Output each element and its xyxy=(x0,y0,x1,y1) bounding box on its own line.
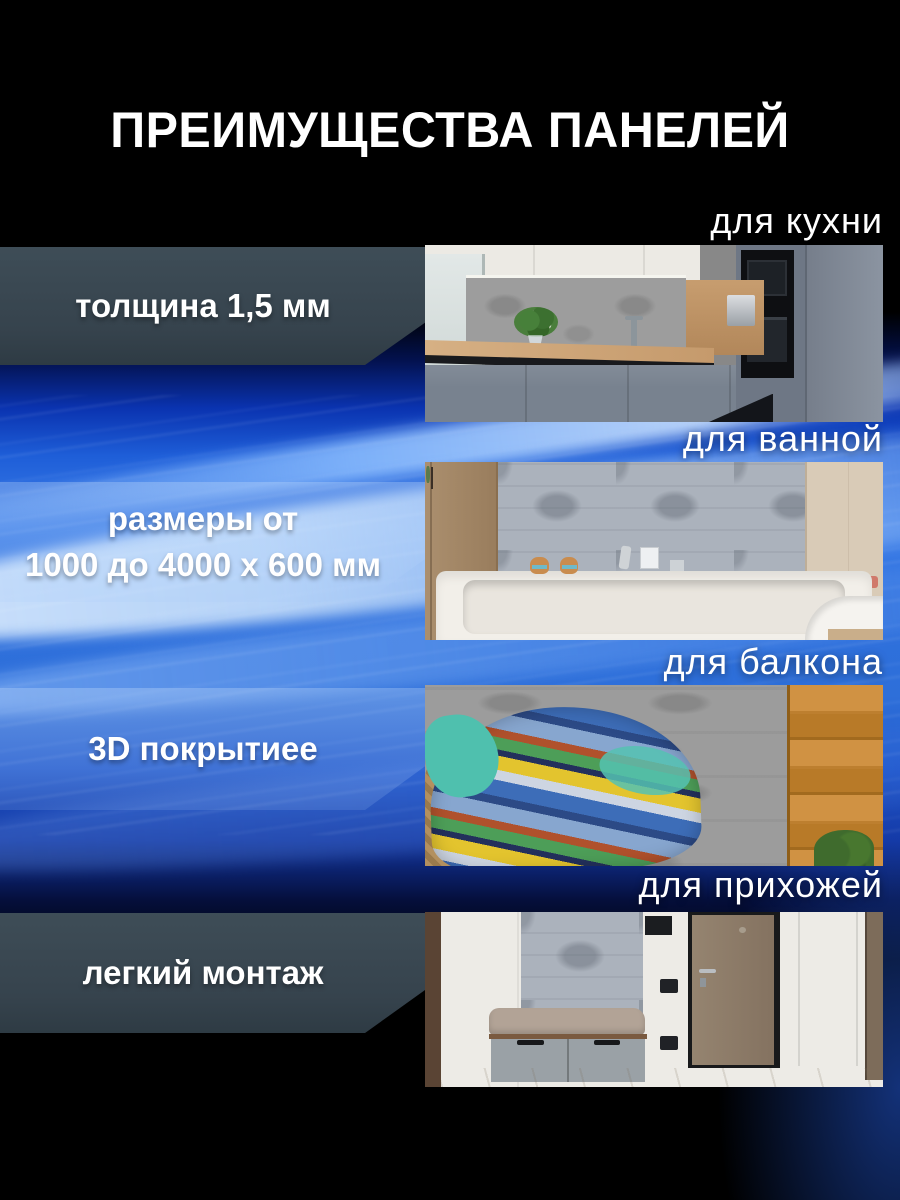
section-caption-hallway: для прихожей xyxy=(383,864,883,906)
page-title: ПРЕИМУЩЕСТВА ПАНЕЛЕЙ xyxy=(14,101,887,159)
kitchen-faucet xyxy=(631,316,637,346)
wardrobe-edge xyxy=(865,912,883,1080)
kitchen-tall-cabinets xyxy=(805,245,883,422)
bath-faucet xyxy=(640,547,658,568)
section-caption-kitchen: для кухни xyxy=(383,200,883,242)
wall-trim xyxy=(798,912,800,1066)
hallway-panel-wall xyxy=(521,912,642,1022)
drawer-handle xyxy=(594,1040,620,1044)
balcony-photo xyxy=(425,685,883,866)
feature-plate-installation: легкий монтаж xyxy=(0,913,432,1033)
plank-seam xyxy=(430,462,432,640)
feature-label: легкий монтаж xyxy=(83,950,324,996)
bathroom-photo xyxy=(425,462,883,640)
feature-plate-sizes: размеры от 1000 до 4000 х 600 мм xyxy=(0,482,432,602)
green-bush xyxy=(814,830,874,866)
drawer-handle xyxy=(517,1040,543,1044)
figurine xyxy=(560,557,578,574)
door-frame xyxy=(688,912,780,1068)
feature-label: размеры от 1000 до 4000 х 600 мм xyxy=(25,496,381,588)
advantages-poster: ПРЕИМУЩЕСТВА ПАНЕЛЕЙ для кухни для ванно… xyxy=(0,0,900,1200)
shelf-bottle xyxy=(431,467,433,488)
coffee-machine xyxy=(727,295,754,327)
section-caption-balcony: для балкона xyxy=(383,641,883,683)
sink-cabinet xyxy=(828,629,883,640)
power-socket xyxy=(660,1036,678,1050)
feature-plate-coating: 3D покрытиее xyxy=(0,688,432,810)
section-caption-bathroom: для ванной xyxy=(383,418,883,460)
bench-cushion xyxy=(489,1008,645,1034)
bathtub-basin xyxy=(463,580,846,634)
faucet-handle xyxy=(670,560,684,571)
kitchen-lower-cabinets xyxy=(425,365,736,422)
peephole xyxy=(739,927,746,933)
kitchen-photo xyxy=(425,245,883,422)
figurine xyxy=(530,557,548,574)
shelf-plant xyxy=(426,466,430,484)
hallway-photo xyxy=(425,912,883,1087)
feature-plate-thickness: толщина 1,5 мм xyxy=(0,247,432,365)
feature-label: толщина 1,5 мм xyxy=(75,283,330,329)
hallway-left-trim xyxy=(425,912,441,1087)
light-switch xyxy=(660,979,678,993)
kitchen-faucet-spout xyxy=(625,316,643,320)
feature-label: 3D покрытиее xyxy=(88,726,317,772)
intercom-panel xyxy=(645,916,672,935)
hallway-floor xyxy=(441,1068,883,1087)
flower-bouquet xyxy=(514,307,558,337)
door-lock xyxy=(700,978,706,987)
entry-door xyxy=(692,915,774,1065)
door-handle xyxy=(699,969,717,973)
kitchen-panel-backsplash xyxy=(466,275,686,348)
wall-trim xyxy=(856,912,858,1066)
